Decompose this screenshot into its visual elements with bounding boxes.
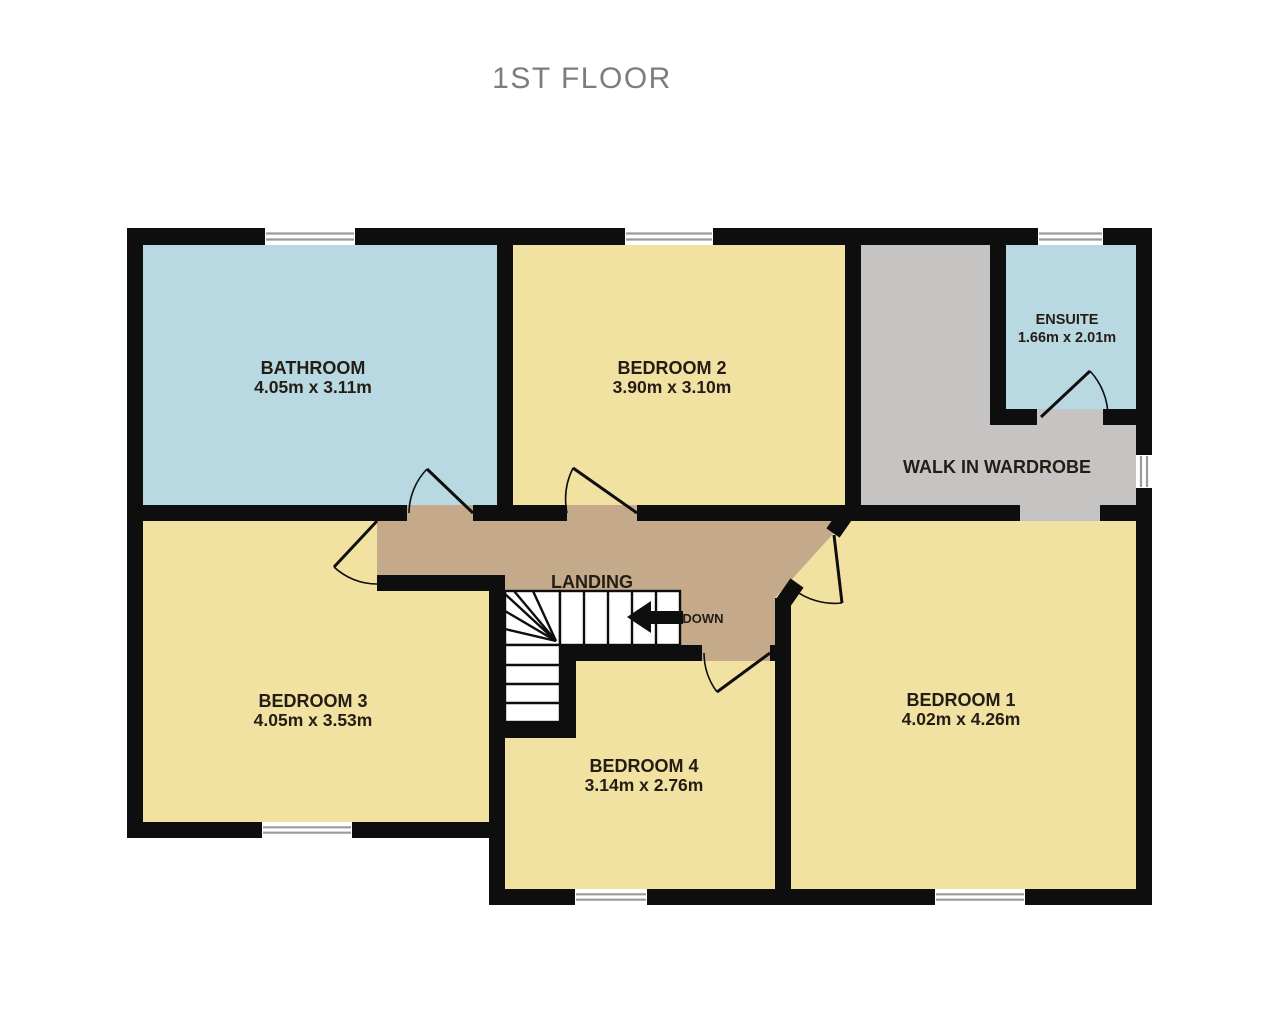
floorplan-page: 1ST FLOOR BATHROOM 4.05m x 3.11m BEDROOM…: [0, 0, 1280, 1034]
bedroom2-dims: 3.90m x 3.10m: [613, 377, 732, 397]
window-bedroom1: [935, 889, 1025, 905]
bedroom4-dims: 3.14m x 2.76m: [585, 775, 704, 795]
wall-bathroom-bottom: [143, 505, 407, 521]
wall-bedroom2-wardrobe: [845, 245, 861, 521]
wall-stairs-bottom: [489, 722, 576, 738]
window-bathroom: [265, 228, 355, 245]
down-label: DOWN: [682, 611, 723, 626]
wall-outer-left: [127, 228, 143, 838]
wall-landing-bedroom4: [560, 645, 702, 661]
window-bedroom3: [262, 822, 352, 838]
ensuite-label: ENSUITE: [1036, 312, 1099, 328]
wall-ensuite-bottom: [990, 409, 1037, 425]
window-wardrobe-right: [1136, 455, 1152, 488]
wall-outer-right: [1136, 228, 1152, 905]
wall-landing-bedroom3: [377, 575, 505, 591]
bathroom-dims: 4.05m x 3.11m: [254, 377, 372, 397]
wall-bathroom-bedroom2: [497, 245, 513, 521]
window-bedroom2: [625, 228, 713, 245]
wall-bedroom2-bottom: [513, 505, 567, 521]
doorway-floor: [702, 645, 770, 661]
ensuite-dims: 1.66m x 2.01m: [1018, 330, 1116, 346]
bathroom-label: BATHROOM: [261, 358, 366, 378]
wall-bedroom4-bedroom1: [775, 598, 791, 889]
bedroom1-label: BEDROOM 1: [906, 690, 1015, 710]
page-title: 1ST FLOOR: [492, 62, 672, 95]
window-bedroom4: [575, 889, 647, 905]
bedroom3-label: BEDROOM 3: [258, 691, 367, 711]
doorway-floor: [407, 505, 473, 521]
doorway-floor: [1020, 505, 1100, 521]
bedroom2-label: BEDROOM 2: [617, 358, 726, 378]
wall-wardrobe-bottom: [1100, 505, 1136, 521]
bedroom4-label: BEDROOM 4: [589, 756, 698, 776]
wall-bedroom3-stairs: [489, 575, 505, 905]
floorplan-svg: 1ST FLOOR BATHROOM 4.05m x 3.11m BEDROOM…: [0, 0, 1280, 1034]
wardrobe-label: WALK IN WARDROBE: [903, 457, 1091, 477]
wall-bedroom2-bottom: [637, 505, 861, 521]
window-ensuite: [1038, 228, 1103, 245]
wall-wardrobe-ensuite: [990, 245, 1006, 425]
bedroom3-dims: 4.05m x 3.53m: [254, 710, 373, 730]
bedroom1-dims: 4.02m x 4.26m: [902, 709, 1021, 729]
landing-label: LANDING: [551, 572, 633, 592]
wall-wardrobe-bottom: [861, 505, 1020, 521]
wall-bathroom-bottom: [473, 505, 513, 521]
